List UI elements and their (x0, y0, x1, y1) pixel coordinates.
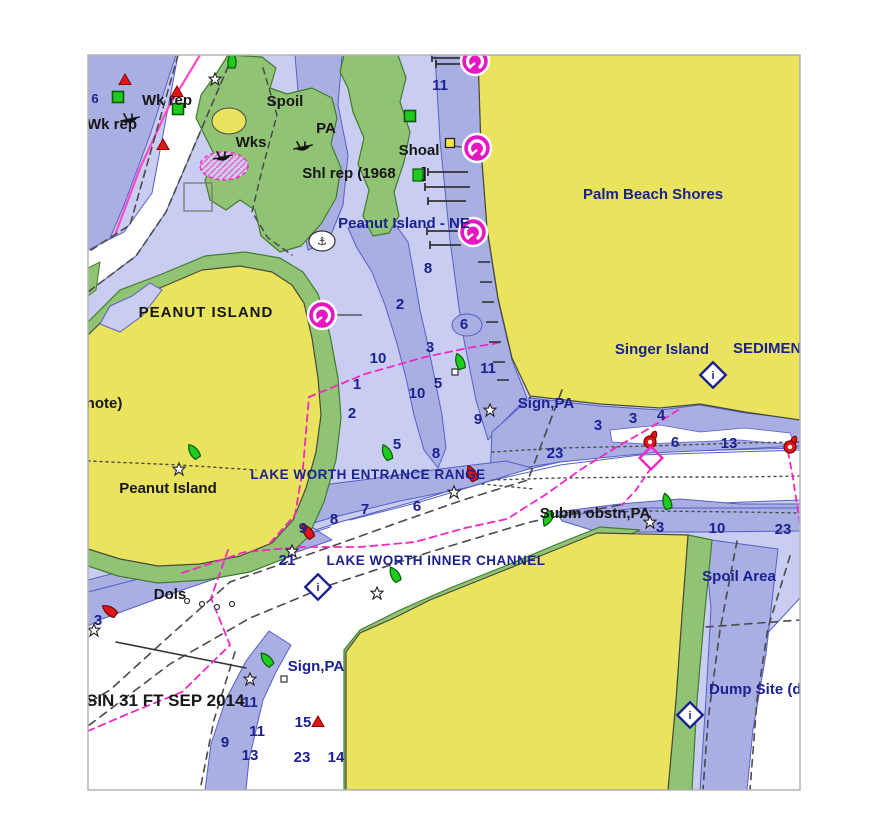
depth-sounding-label: 14 (328, 749, 345, 766)
depth-sounding-label: 10 (370, 350, 387, 367)
dolphin-pile-icon (215, 605, 220, 610)
place-label: Sign,PA (288, 658, 345, 675)
place-label: LAKE WORTH ENTRANCE RANGE (250, 467, 485, 482)
place-label: Peanut Island - NE (338, 215, 470, 232)
chart-layers: iii⚓6Wk repWk repSpoilWksPAShoalShl rep … (86, 47, 811, 790)
place-label: Wks (236, 134, 267, 151)
depth-sounding-label: 6 (460, 316, 468, 333)
depth-sounding-label: 9 (474, 411, 482, 428)
place-label: SIN 31 FT SEP 2014 (86, 691, 245, 710)
depth-sounding-label: 6 (413, 498, 421, 515)
place-label: Shoal (399, 142, 440, 159)
depth-sounding-label: 8 (330, 511, 338, 528)
depth-sounding-label: 13 (721, 435, 738, 452)
depth-sounding-label: 2 (396, 296, 404, 313)
depth-sounding-label: 3 (426, 339, 434, 356)
depth-sounding-label: 1 (353, 376, 361, 393)
place-label: Sign,PA (518, 395, 575, 412)
place-label: Palm Beach Shores (583, 186, 723, 203)
place-label: Spoil Area (702, 568, 776, 585)
anchor-icon: ⚓ (317, 236, 327, 248)
depth-sounding-label: 3 (94, 612, 102, 629)
place-label: SEDIMENT (733, 340, 811, 357)
place-label: note) (86, 395, 123, 412)
depth-sounding-label: 9 (299, 520, 307, 537)
depth-sounding-label: 11 (480, 360, 496, 377)
green-square-mark-icon[interactable] (113, 92, 124, 103)
dolphin-pile-icon (200, 602, 205, 607)
depth-sounding-label: 3 (594, 417, 602, 434)
depth-sounding-label: 23 (547, 445, 564, 462)
depth-sounding-label: 23 (775, 521, 792, 538)
place-label: Wk rep (87, 116, 137, 133)
depth-sounding-label: 7 (361, 501, 369, 518)
depth-sounding-label: 3 (629, 410, 637, 427)
depth-sounding-label: 5 (434, 375, 442, 392)
marina-icon[interactable] (308, 301, 336, 329)
land-palm-beach-shores (478, 55, 800, 420)
place-label: Dols (154, 586, 187, 603)
depth-sounding-label: 3 (656, 519, 664, 536)
place-label: Shl rep (1968 (302, 165, 395, 182)
depth-sounding-label: 13 (242, 747, 259, 764)
depth-sounding-label: 8 (424, 260, 432, 277)
place-label: ] (422, 165, 427, 182)
depth-sounding-label: 8 (432, 445, 440, 462)
depth-sounding-label: 10 (709, 520, 726, 537)
depth-sounding-label: 23 (294, 749, 311, 766)
place-label: PA (316, 120, 336, 137)
depth-sounding-label: 11 (249, 723, 265, 740)
place-label: PEANUT ISLAND (139, 304, 274, 321)
depth-sounding-label: 2 (348, 405, 356, 422)
depth-sounding-label: 21 (279, 552, 296, 569)
depth-sounding-label: 5 (393, 436, 401, 453)
place-label: Dump Site (di (709, 681, 806, 698)
place-label: 6 (91, 91, 98, 106)
depth-sounding-label: 15 (295, 714, 312, 731)
place-label: Wk rep (142, 92, 192, 109)
depth-sounding-label: 11 (432, 77, 448, 94)
place-label: LAKE WORTH INNER CHANNEL (327, 553, 546, 568)
depth-sounding-label: 10 (409, 385, 426, 402)
yellow-beacon-icon[interactable] (446, 139, 455, 148)
place-label: Subm obstn,PA (540, 505, 651, 522)
green-square-mark-icon[interactable] (405, 111, 416, 122)
nautical-chart[interactable]: iii⚓6Wk repWk repSpoilWksPAShoalShl rep … (0, 0, 890, 820)
svg-text:i: i (711, 370, 714, 382)
small-mark-square-icon (452, 369, 458, 375)
dolphin-pile-icon (230, 602, 235, 607)
chart-page: iii⚓6Wk repWk repSpoilWksPAShoalShl rep … (0, 0, 890, 820)
place-label: Peanut Island (119, 480, 217, 497)
depth-sounding-label: 4 (657, 407, 666, 424)
svg-text:i: i (316, 582, 319, 594)
place-label: Spoil (267, 93, 304, 110)
depth-sounding-label: 11 (242, 694, 258, 711)
place-label: Singer Island (615, 341, 709, 358)
svg-text:i: i (688, 710, 691, 722)
land-spoil-patch (212, 108, 246, 134)
marina-icon[interactable] (463, 134, 491, 162)
small-mark-square-icon (281, 676, 287, 682)
depth-sounding-label: 6 (671, 434, 679, 451)
depth-sounding-label: 9 (221, 734, 229, 751)
